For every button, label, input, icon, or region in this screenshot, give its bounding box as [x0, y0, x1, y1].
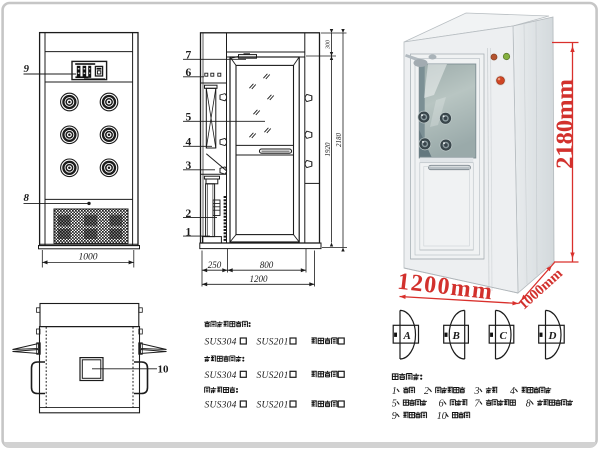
svg-text:4: 4 [510, 386, 515, 397]
svg-text:SUS304: SUS304 [205, 401, 237, 411]
svg-text:9: 9 [392, 411, 397, 422]
svg-text:1200: 1200 [250, 274, 269, 284]
svg-text:5: 5 [392, 398, 397, 409]
svg-text:1: 1 [392, 386, 397, 397]
svg-text:C: C [500, 330, 508, 342]
svg-text:300: 300 [326, 40, 332, 50]
svg-text:10: 10 [437, 411, 447, 422]
svg-text:3: 3 [474, 386, 480, 397]
svg-text:SUS304: SUS304 [205, 371, 237, 381]
svg-text:10: 10 [158, 363, 170, 375]
svg-text:800: 800 [260, 260, 274, 270]
svg-text:250: 250 [208, 260, 222, 270]
svg-text:1920: 1920 [324, 142, 332, 157]
svg-text:2: 2 [424, 386, 429, 397]
svg-text:2180: 2180 [335, 133, 343, 148]
svg-text:SUS201: SUS201 [257, 401, 289, 411]
svg-text:6: 6 [439, 398, 444, 409]
svg-text:2180mm: 2180mm [551, 79, 578, 169]
svg-text:8: 8 [526, 398, 531, 409]
svg-text:9: 9 [24, 63, 30, 75]
svg-text:D: D [548, 330, 557, 342]
svg-text:A: A [403, 330, 411, 342]
svg-text:SUS304: SUS304 [205, 338, 237, 348]
svg-text:1000: 1000 [79, 253, 98, 263]
svg-text:B: B [452, 330, 460, 342]
svg-text:SUS201: SUS201 [257, 371, 289, 381]
svg-text:SUS201: SUS201 [257, 338, 289, 348]
svg-text:8: 8 [24, 192, 30, 204]
